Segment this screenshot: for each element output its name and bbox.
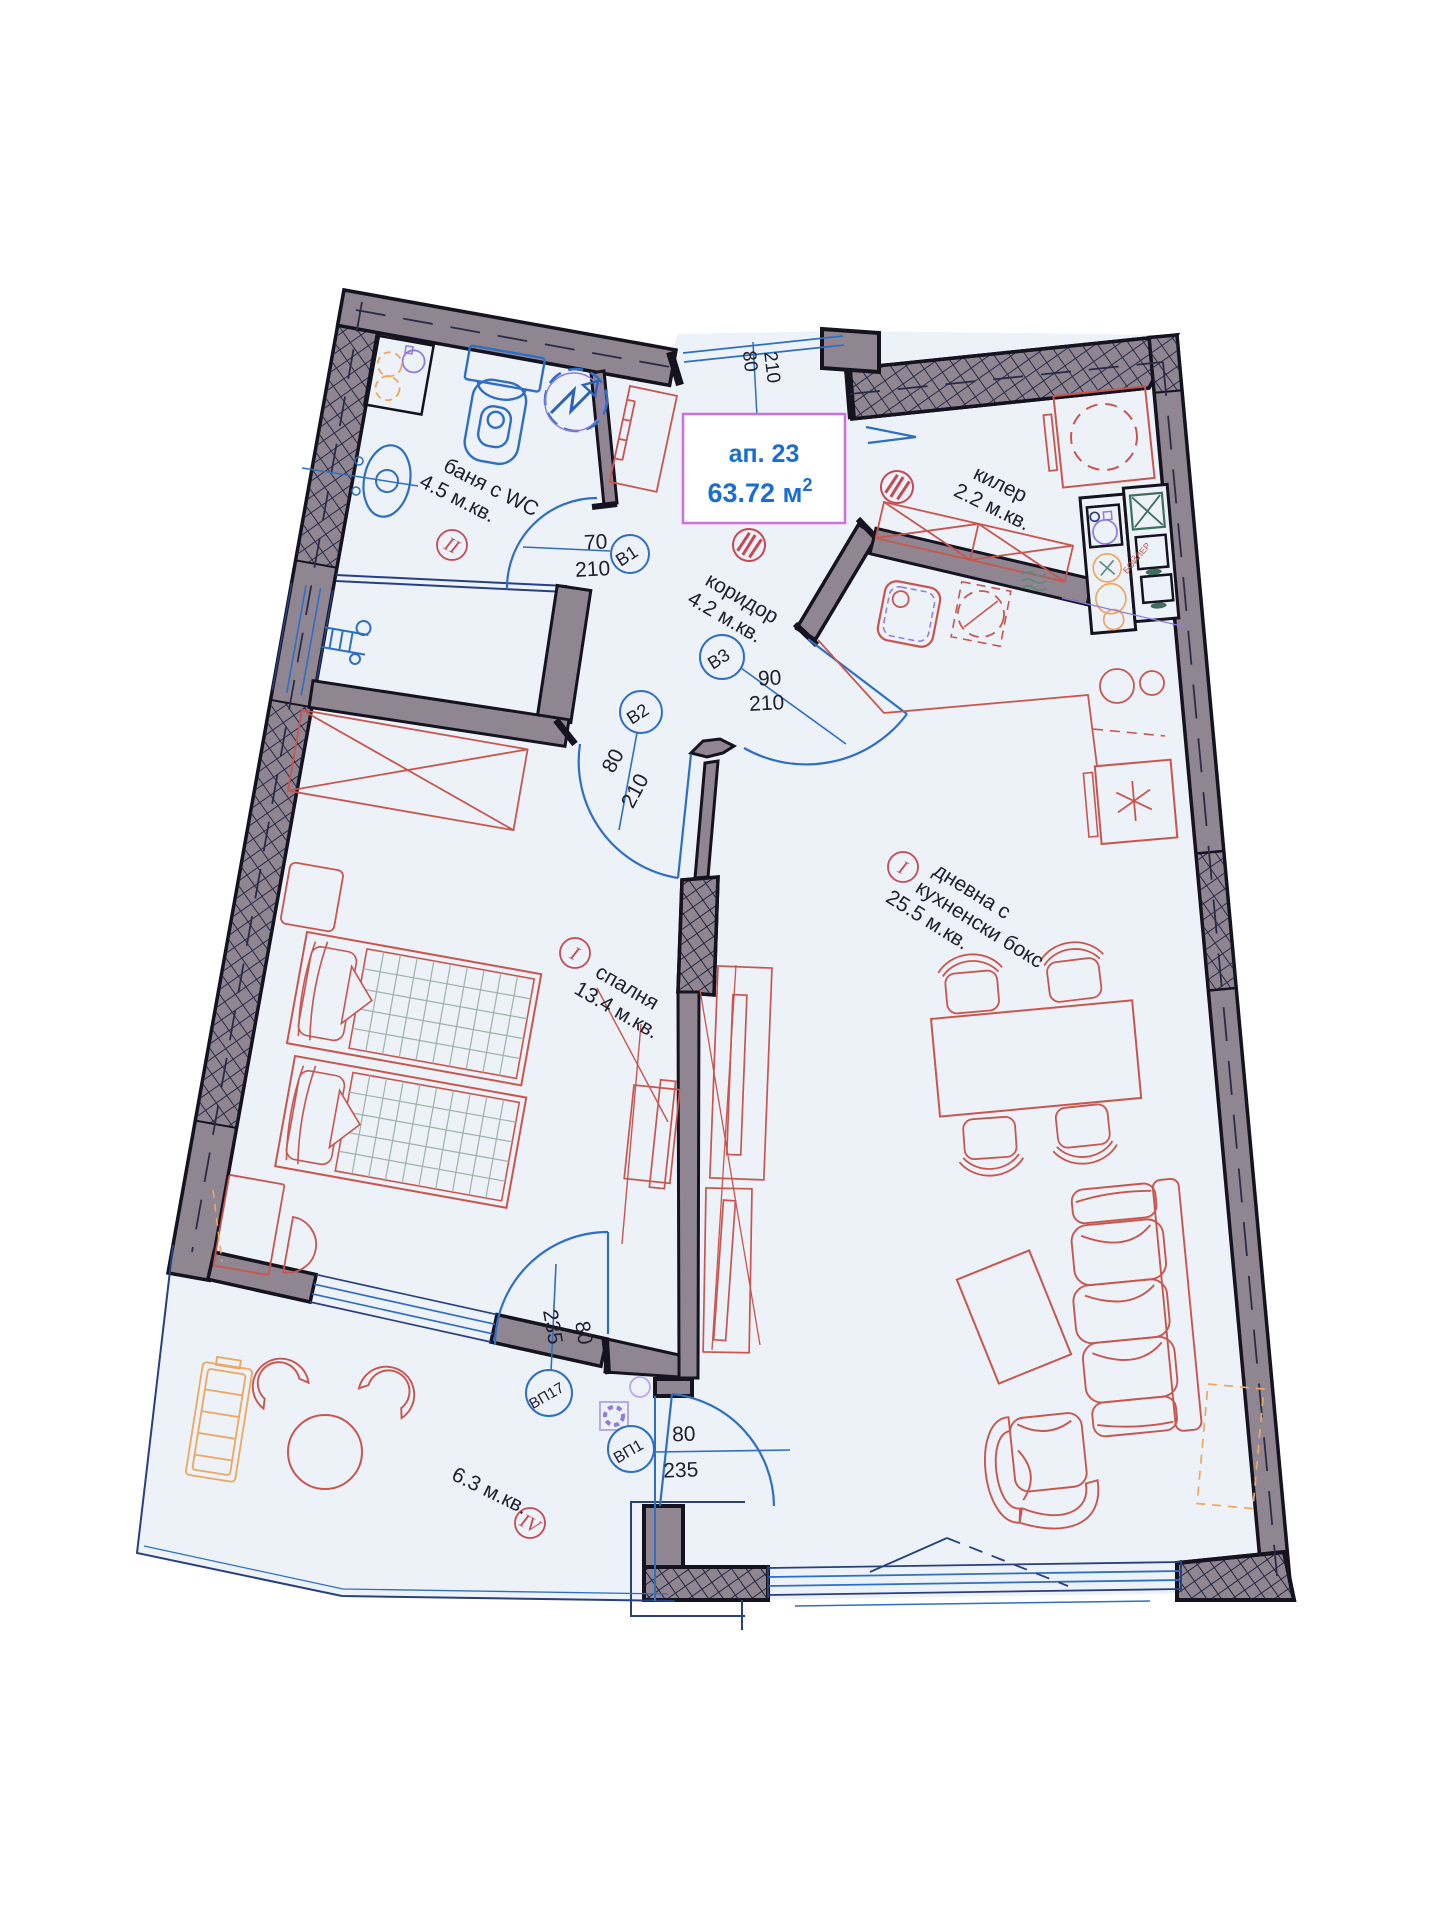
- svg-text:90: 90: [757, 666, 782, 690]
- svg-text:80: 80: [672, 1423, 696, 1447]
- svg-text:80: 80: [738, 350, 761, 374]
- svg-text:80: 80: [570, 1319, 597, 1346]
- svg-text:210: 210: [759, 350, 784, 384]
- svg-text:210: 210: [749, 691, 785, 716]
- svg-text:ап. 23: ап. 23: [729, 440, 800, 468]
- svg-text:63.72 м2: 63.72 м2: [707, 475, 812, 508]
- svg-text:210: 210: [575, 557, 611, 582]
- svg-text:70: 70: [583, 530, 608, 554]
- svg-text:235: 235: [663, 1458, 699, 1482]
